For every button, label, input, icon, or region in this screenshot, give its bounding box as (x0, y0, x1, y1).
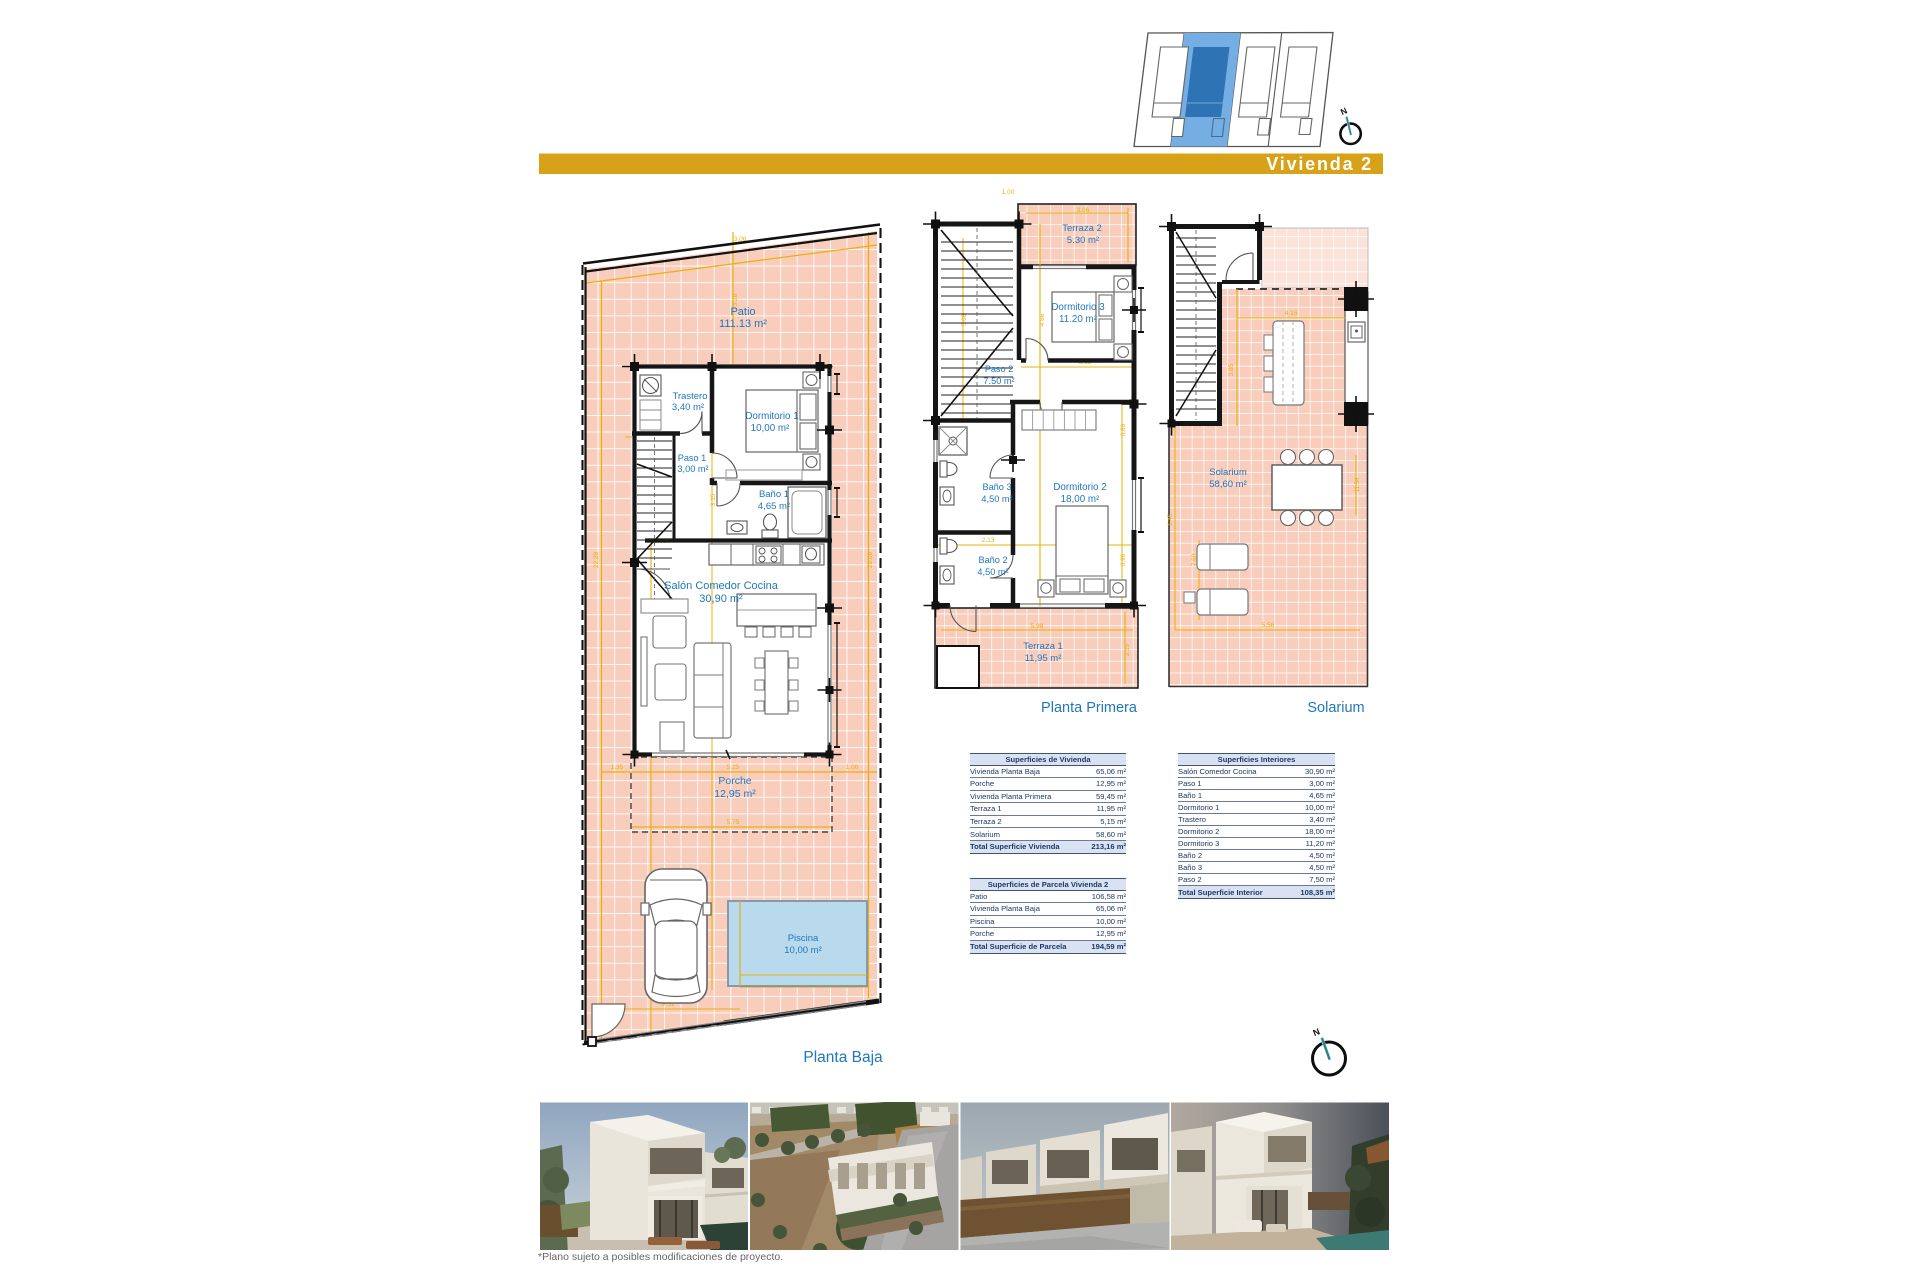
svg-text:30,90 m²: 30,90 m² (699, 593, 743, 605)
svg-text:N: N (1339, 105, 1349, 117)
svg-text:0.80: 0.80 (1120, 423, 1127, 436)
svg-text:10,00 m²: 10,00 m² (751, 423, 790, 434)
svg-text:3.06: 3.06 (1077, 207, 1090, 214)
svg-text:Terraza 2: Terraza 2 (1062, 223, 1102, 234)
svg-text:0.96: 0.96 (1120, 553, 1127, 566)
svg-text:3.28: 3.28 (732, 293, 739, 306)
svg-text:N: N (1311, 1026, 1321, 1038)
svg-text:4,65 m²: 4,65 m² (758, 501, 790, 512)
svg-text:11.20 m²: 11.20 m² (1059, 314, 1098, 325)
svg-text:7.50 m²: 7.50 m² (983, 376, 1014, 386)
svg-text:12,95 m²: 12,95 m² (714, 788, 756, 800)
svg-text:5.98: 5.98 (1031, 623, 1044, 630)
svg-text:22.09: 22.09 (867, 551, 874, 568)
svg-text:1.00: 1.00 (1002, 189, 1015, 196)
svg-text:3,00 m²: 3,00 m² (677, 464, 708, 474)
svg-text:Solarium: Solarium (1307, 700, 1364, 716)
svg-text:Patio: Patio (730, 306, 755, 318)
svg-text:Vivienda 2: Vivienda 2 (1266, 154, 1373, 174)
svg-text:111.13 m²: 111.13 m² (719, 318, 767, 330)
svg-text:5.56: 5.56 (1262, 622, 1275, 629)
svg-text:Dormitorio 2: Dormitorio 2 (1053, 482, 1106, 493)
svg-text:Paso 2: Paso 2 (985, 364, 1014, 374)
svg-text:1.45: 1.45 (1167, 513, 1174, 526)
svg-text:Baño 1: Baño 1 (759, 489, 789, 500)
svg-text:Planta Primera: Planta Primera (1041, 700, 1138, 716)
svg-text:Porche: Porche (718, 775, 751, 787)
svg-text:3,40 m²: 3,40 m² (672, 402, 704, 413)
svg-text:Trastero: Trastero (672, 391, 707, 402)
svg-text:Paso 1: Paso 1 (678, 453, 707, 463)
svg-text:3.15: 3.15 (710, 493, 717, 506)
svg-text:11,95 m²: 11,95 m² (1025, 653, 1062, 664)
svg-text:4.66: 4.66 (1039, 313, 1046, 326)
svg-text:Baño 2: Baño 2 (978, 555, 1007, 565)
svg-text:Planta Baja: Planta Baja (803, 1049, 883, 1066)
svg-text:22.28: 22.28 (593, 551, 600, 568)
svg-text:58,60 m²: 58,60 m² (1209, 479, 1247, 490)
svg-text:5.75: 5.75 (727, 819, 740, 826)
svg-text:1.00: 1.00 (846, 764, 859, 771)
svg-text:3.85: 3.85 (1228, 363, 1235, 376)
svg-text:4,50 m²: 4,50 m² (981, 494, 1012, 504)
svg-text:10,00 m²: 10,00 m² (784, 945, 822, 956)
svg-text:Terraza 1: Terraza 1 (1023, 641, 1063, 652)
svg-text:Piscina: Piscina (788, 933, 819, 944)
svg-text:Dormitorio 3: Dormitorio 3 (1051, 302, 1105, 313)
svg-text:Solarium: Solarium (1209, 467, 1247, 478)
svg-text:Baño 3: Baño 3 (982, 482, 1011, 492)
svg-text:11.54: 11.54 (1354, 477, 1361, 493)
svg-text:Dormitorio 1: Dormitorio 1 (745, 411, 798, 422)
svg-text:4.15: 4.15 (1285, 310, 1298, 317)
svg-text:Salón Comedor Cocina: Salón Comedor Cocina (664, 580, 779, 592)
svg-text:5.30 m²: 5.30 m² (1067, 235, 1099, 246)
svg-text:1.35: 1.35 (611, 764, 624, 771)
svg-text:2.13: 2.13 (982, 537, 995, 544)
svg-text:18,00 m²: 18,00 m² (1061, 494, 1100, 505)
svg-text:2.15: 2.15 (1124, 643, 1131, 656)
svg-text:4,50 m²: 4,50 m² (977, 567, 1008, 577)
svg-text:5.08: 5.08 (961, 313, 968, 326)
svg-text:5.25: 5.25 (727, 764, 740, 771)
